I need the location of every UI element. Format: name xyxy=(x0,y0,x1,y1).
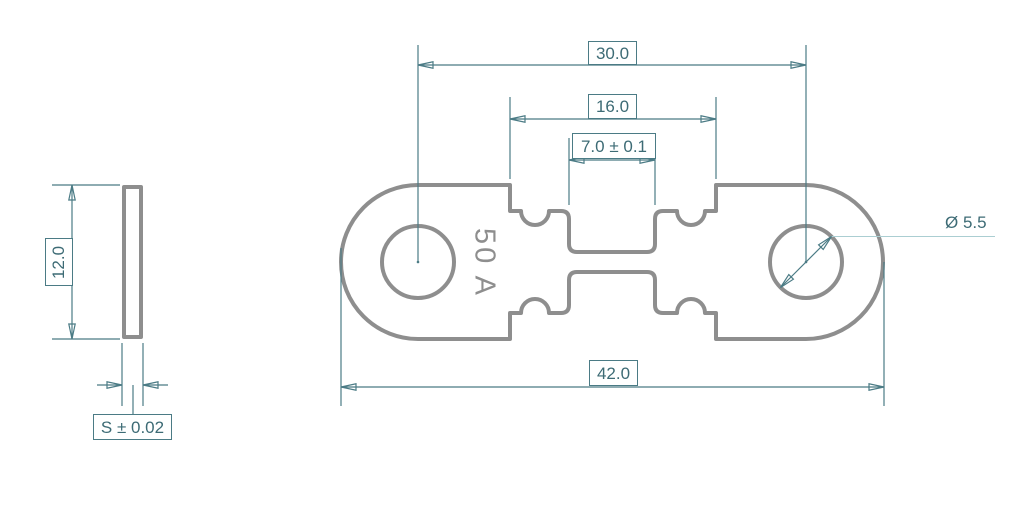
dim-label-overall-length: 42.0 xyxy=(589,360,638,386)
dim-label-recess-width: 16.0 xyxy=(588,94,637,119)
dim-label-plate-height-text: 12.0 xyxy=(51,245,68,278)
dim-label-hole-pitch: 30.0 xyxy=(588,41,637,65)
fuse-body-outline xyxy=(341,185,883,339)
dim-label-plate-thickness: S ± 0.02 xyxy=(93,414,172,440)
technical-drawing-canvas: 30.0 16.0 7.0 ± 0.1 42.0 Ø 5.5 12.0 S ± … xyxy=(0,0,1009,509)
side-view-plate-outline xyxy=(124,187,141,337)
fuse-amp-rating-marking: 50 A xyxy=(468,228,501,298)
dim-label-hole-diameter: Ø 5.5 xyxy=(945,214,987,231)
dim-label-element-width: 7.0 ± 0.1 xyxy=(572,133,656,159)
dim-label-plate-height: 12.0 xyxy=(45,238,73,286)
